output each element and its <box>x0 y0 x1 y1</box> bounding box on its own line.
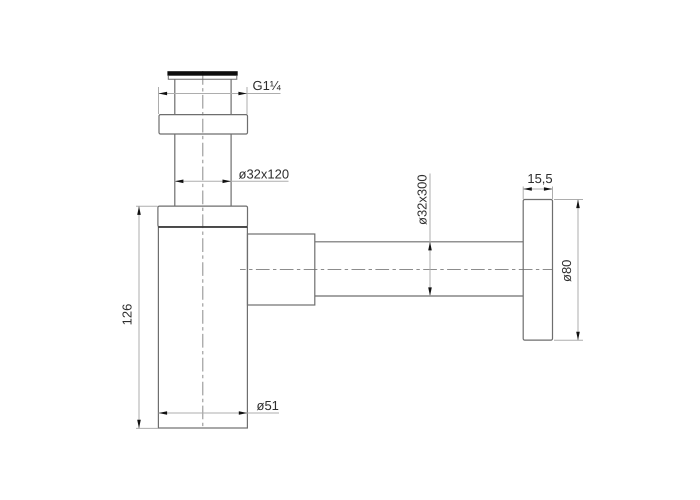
svg-text:ø32x300: ø32x300 <box>414 174 429 225</box>
svg-text:ø80: ø80 <box>559 260 574 282</box>
svg-text:ø51: ø51 <box>257 398 279 413</box>
svg-text:G1¼: G1¼ <box>253 78 281 93</box>
svg-text:ø32x120: ø32x120 <box>239 166 290 181</box>
svg-text:126: 126 <box>120 304 135 326</box>
svg-text:15,5: 15,5 <box>527 171 552 186</box>
